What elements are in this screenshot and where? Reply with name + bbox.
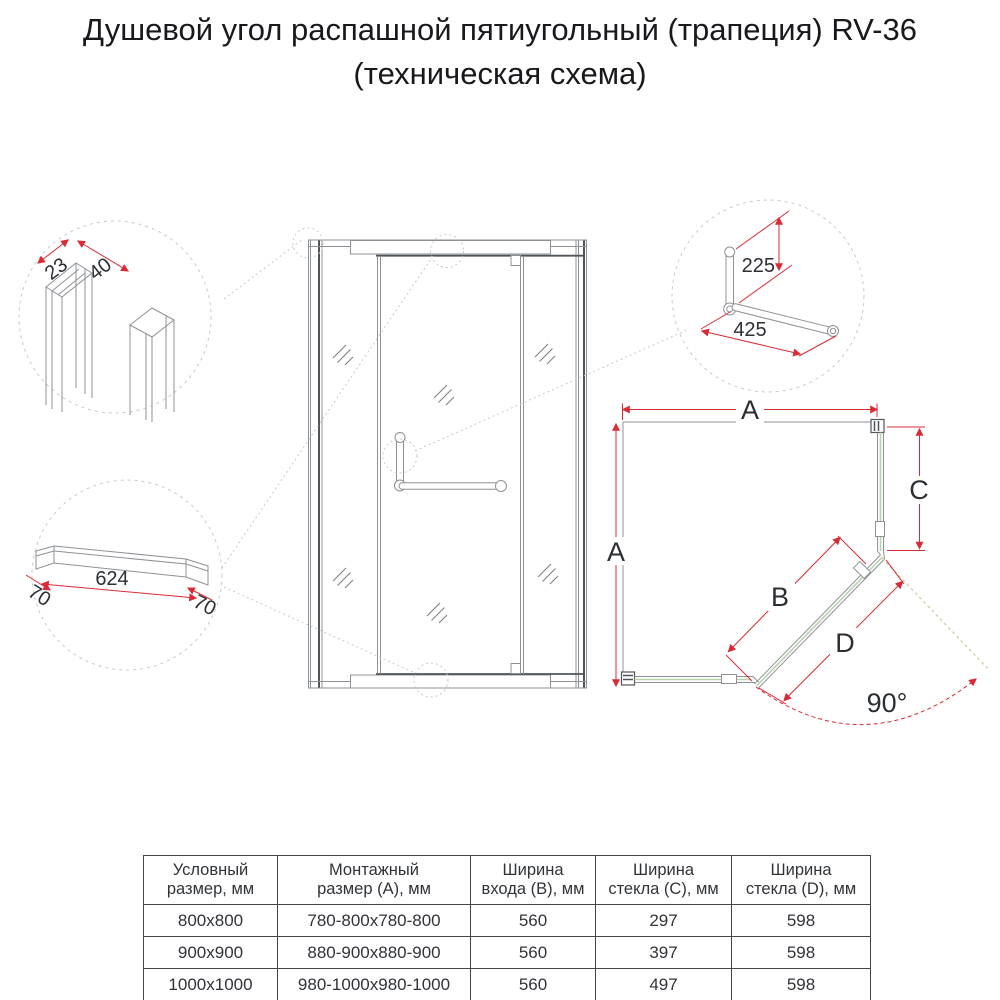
- glass-hatch-mark: [427, 603, 447, 623]
- col-header-glass-c-width: Ширина стекла (C), мм: [596, 856, 732, 905]
- cell-glass-c-width: 397: [596, 937, 732, 969]
- handle-height-dim-label: 225: [742, 255, 775, 277]
- cell-glass-c-width: 297: [596, 905, 732, 937]
- table-row: 800x800 780-800x780-800 560 297 598: [144, 905, 871, 937]
- cell-mounting-size: 880-900x880-900: [278, 937, 471, 969]
- front-view: [308, 240, 587, 688]
- glass-hatch-mark: [333, 568, 353, 588]
- right-wall-profile: [576, 240, 587, 688]
- cell-mounting-size: 980-1000x980-1000: [278, 969, 471, 1000]
- left-wall-profile: [309, 240, 323, 688]
- detail-circle-profile: [19, 221, 211, 413]
- plan-door-angle-label: 90°: [867, 688, 908, 718]
- plan-hinge-right: [876, 522, 885, 537]
- cell-nominal-size: 1000x1000: [144, 969, 278, 1000]
- col-header-entrance-width: Ширина входа (B), мм: [471, 856, 596, 905]
- threshold-right-dim-label: 70: [190, 591, 220, 621]
- col-header-glass-d-width: Ширина стекла (D), мм: [732, 856, 871, 905]
- top-bar: [308, 240, 587, 256]
- cell-entrance-width: 560: [471, 969, 596, 1000]
- plan-dimensions: [616, 404, 925, 705]
- cell-nominal-size: 900x900: [144, 937, 278, 969]
- cell-glass-d-width: 598: [732, 937, 871, 969]
- table-row: 900x900 880-900x880-900 560 397 598: [144, 937, 871, 969]
- glass-hatch-mark: [535, 344, 555, 364]
- plan-hinge-bottom: [722, 675, 737, 684]
- plan-dim-label-b: B: [771, 582, 789, 612]
- table-row: 1000x1000 980-1000x980-1000 560 497 598: [144, 969, 871, 1000]
- door-handle: [395, 433, 507, 492]
- leader-line: [222, 256, 433, 568]
- handle-length-dim-label: 425: [733, 319, 766, 341]
- plan-profile-bottom-left: [622, 672, 635, 685]
- plan-dim-label-a-top: A: [741, 395, 759, 425]
- threshold-left-dim-label: 70: [24, 581, 55, 611]
- leader-line: [415, 330, 687, 451]
- cell-entrance-width: 560: [471, 937, 596, 969]
- glass-hatch-mark: [333, 345, 353, 365]
- table-header-row: Условный размер, мм Монтажный размер (А)…: [144, 856, 871, 905]
- technical-drawing: 23 40 624 70 70: [0, 0, 1000, 1000]
- detail-threshold-drawing: 624 70 70: [24, 546, 220, 620]
- col-header-nominal-size: Условный размер, мм: [144, 856, 278, 905]
- cell-glass-d-width: 598: [732, 905, 871, 937]
- detail-handle-drawing: 225 425: [701, 211, 839, 356]
- leader-line: [224, 239, 303, 299]
- cell-entrance-width: 560: [471, 905, 596, 937]
- plan-dim-label-c: C: [909, 475, 929, 505]
- door-hinge-bottom: [511, 664, 521, 674]
- size-table: Условный размер, мм Монтажный размер (А)…: [143, 855, 871, 1000]
- plan-view: A A C B D 90°: [602, 395, 990, 725]
- detail-circle-handle: [672, 200, 864, 392]
- plan-dim-label-d: D: [835, 628, 855, 658]
- glass-hatch-mark: [538, 564, 558, 584]
- glass-hatch-mark: [434, 385, 454, 405]
- plan-profile-top-right: [871, 420, 884, 433]
- cell-mounting-size: 780-800x780-800: [278, 905, 471, 937]
- threshold-length-dim-label: 624: [95, 568, 128, 590]
- technical-schema-page: Душевой угол распашной пятиугольный (тра…: [0, 0, 1000, 1000]
- detail-markers: [19, 200, 864, 697]
- cell-glass-c-width: 497: [596, 969, 732, 1000]
- profile-depth-dim-label: 40: [85, 254, 116, 285]
- door-hinge-top: [511, 256, 521, 266]
- plan-door-open-dash: [882, 558, 990, 671]
- profile-width-dim-label: 23: [41, 254, 72, 285]
- cell-glass-d-width: 598: [732, 969, 871, 1000]
- cell-nominal-size: 800x800: [144, 905, 278, 937]
- col-header-mounting-size: Монтажный размер (А), мм: [278, 856, 471, 905]
- plan-dim-label-a-left: A: [607, 537, 625, 567]
